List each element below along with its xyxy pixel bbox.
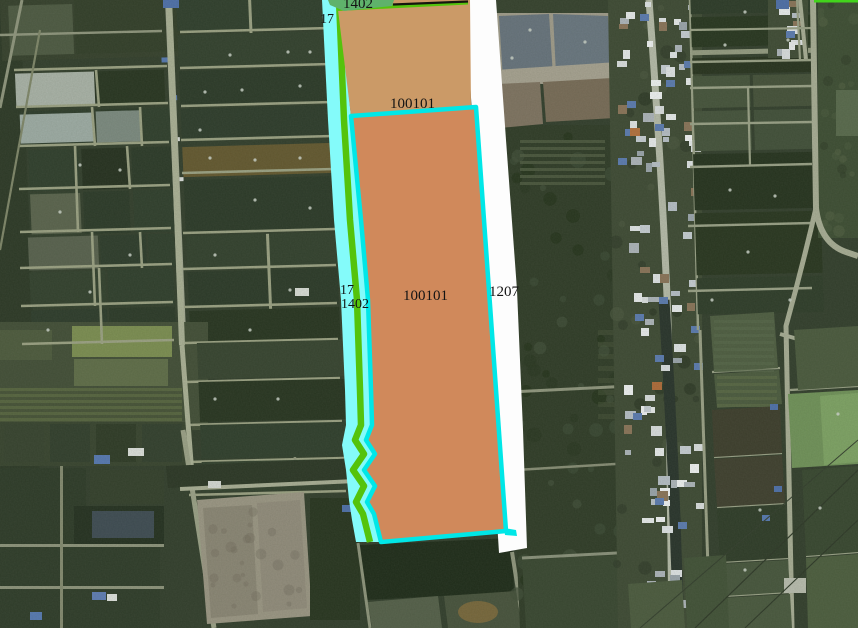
svg-text:100101: 100101 <box>403 288 448 304</box>
svg-text:1402: 1402 <box>343 0 373 12</box>
svg-text:17: 17 <box>320 12 334 27</box>
svg-text:100101: 100101 <box>390 96 435 112</box>
svg-text:1402: 1402 <box>341 297 369 312</box>
svg-text:1207: 1207 <box>489 284 520 300</box>
svg-text:17: 17 <box>340 283 354 298</box>
